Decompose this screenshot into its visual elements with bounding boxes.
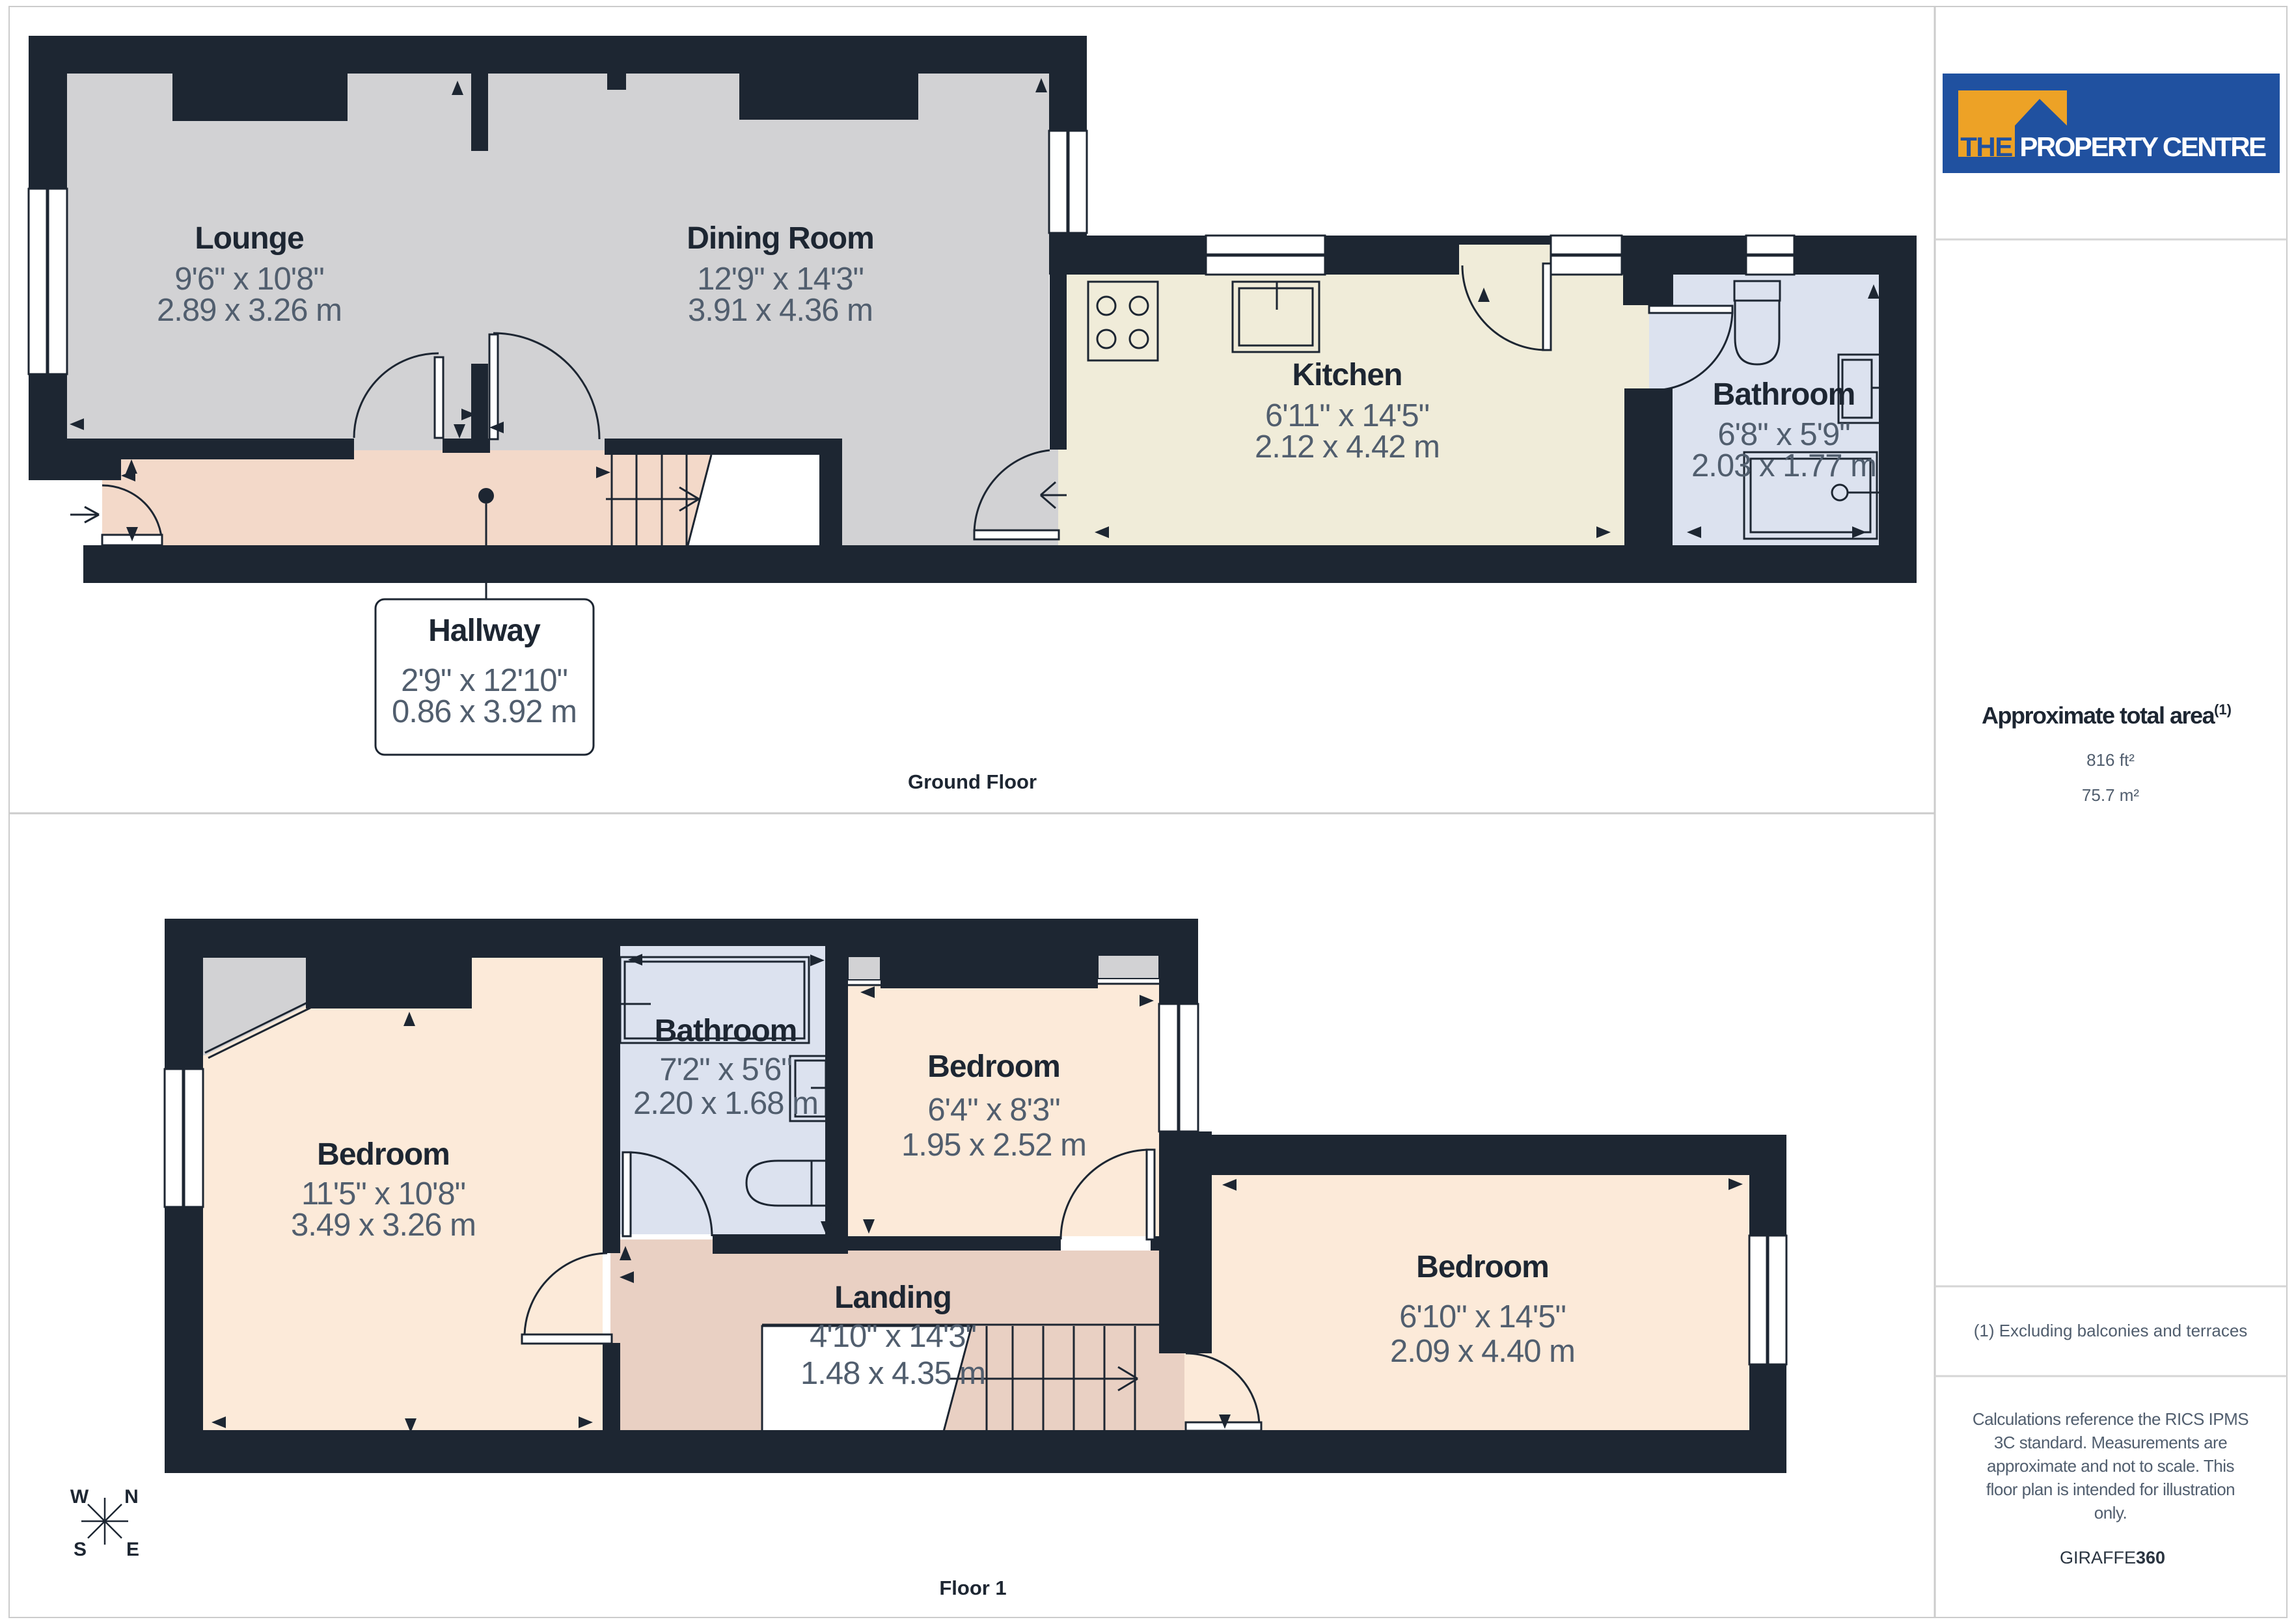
svg-text:2.89 x 3.26 m: 2.89 x 3.26 m — [157, 293, 342, 328]
svg-text:Bedroom: Bedroom — [1416, 1250, 1549, 1284]
svg-text:E: E — [126, 1539, 139, 1560]
svg-text:Bedroom: Bedroom — [317, 1137, 450, 1172]
svg-text:Landing: Landing — [834, 1280, 951, 1315]
svg-text:2.03 x 1.77 m: 2.03 x 1.77 m — [1691, 448, 1876, 483]
svg-text:THE: THE — [1960, 131, 2012, 162]
svg-text:Kitchen: Kitchen — [1292, 358, 1402, 392]
svg-text:N: N — [124, 1486, 139, 1508]
svg-text:Bedroom: Bedroom — [927, 1049, 1060, 1084]
svg-text:1.95 x 2.52 m: 1.95 x 2.52 m — [901, 1128, 1086, 1163]
svg-text:Bathroom: Bathroom — [1713, 377, 1855, 412]
svg-text:6'10" x 14'5": 6'10" x 14'5" — [1399, 1299, 1566, 1334]
svg-text:12'9" x 14'3": 12'9" x 14'3" — [697, 262, 864, 297]
svg-text:S: S — [74, 1539, 87, 1560]
svg-text:Ground Floor: Ground Floor — [908, 770, 1037, 793]
svg-text:PROPERTY CENTRE: PROPERTY CENTRE — [2019, 131, 2266, 162]
svg-text:only.: only. — [2094, 1503, 2127, 1522]
svg-text:Floor 1: Floor 1 — [939, 1577, 1006, 1599]
svg-text:4'10" x 14'3": 4'10" x 14'3" — [810, 1319, 976, 1354]
svg-text:W: W — [70, 1486, 89, 1508]
svg-text:3.91 x 4.36 m: 3.91 x 4.36 m — [688, 293, 873, 328]
svg-text:3C standard. Measurements are: 3C standard. Measurements are — [1994, 1433, 2227, 1452]
svg-text:approximate and not to scale.: approximate and not to scale. This — [1987, 1456, 2234, 1476]
svg-text:6'8" x 5'9": 6'8" x 5'9" — [1717, 417, 1850, 452]
svg-text:2'9" x 12'10": 2'9" x 12'10" — [401, 663, 567, 698]
svg-text:GIRAFFE360: GIRAFFE360 — [2060, 1548, 2165, 1567]
svg-text:Bathroom: Bathroom — [655, 1014, 797, 1048]
svg-text:floor plan is intended for ill: floor plan is intended for illustration — [1986, 1480, 2235, 1499]
svg-text:1.48 x 4.35 m: 1.48 x 4.35 m — [800, 1356, 985, 1391]
svg-text:11'5" x 10'8": 11'5" x 10'8" — [301, 1176, 465, 1211]
svg-text:Hallway: Hallway — [428, 614, 541, 648]
svg-text:Lounge: Lounge — [195, 221, 304, 256]
svg-text:(1) Excluding balconies and te: (1) Excluding balconies and terraces — [1974, 1321, 2248, 1340]
svg-text:2.12 x 4.42 m: 2.12 x 4.42 m — [1255, 429, 1440, 465]
svg-text:9'6" x 10'8": 9'6" x 10'8" — [174, 262, 323, 297]
svg-text:Dining Room: Dining Room — [687, 221, 874, 256]
svg-text:0.86 x 3.92 m: 0.86 x 3.92 m — [392, 694, 577, 729]
svg-text:6'4" x 8'3": 6'4" x 8'3" — [927, 1092, 1059, 1128]
svg-text:3.49 x 3.26 m: 3.49 x 3.26 m — [291, 1208, 476, 1243]
svg-text:Calculations reference the RIC: Calculations reference the RICS IPMS — [1973, 1409, 2248, 1429]
svg-text:2.09 x 4.40 m: 2.09 x 4.40 m — [1390, 1334, 1575, 1369]
svg-text:7'2" x 5'6": 7'2" x 5'6" — [659, 1052, 791, 1087]
svg-text:6'11" x 14'5": 6'11" x 14'5" — [1265, 398, 1429, 433]
svg-text:75.7 m²: 75.7 m² — [2082, 785, 2139, 805]
svg-text:2.20 x 1.68 m: 2.20 x 1.68 m — [633, 1086, 818, 1121]
svg-text:816 ft²: 816 ft² — [2086, 750, 2135, 770]
svg-text:Approximate total area(1): Approximate total area(1) — [1982, 701, 2232, 729]
